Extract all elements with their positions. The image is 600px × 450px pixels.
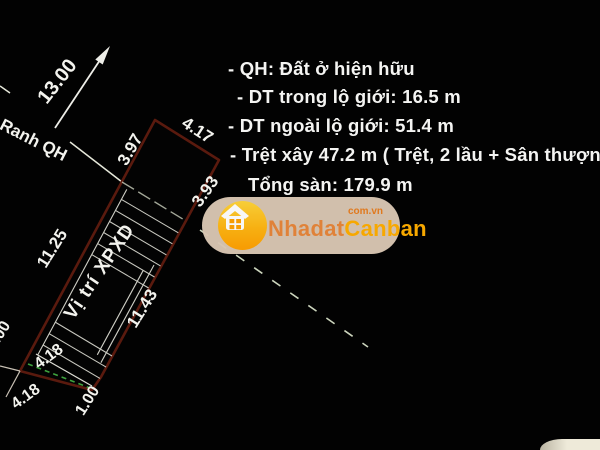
note-dt-trong: - DT trong lộ giới: 16.5 m xyxy=(237,86,461,108)
boundary-label: Ranh QH xyxy=(0,115,70,165)
land-plot-diagram: 13.00 Ranh QH 3.97 4.17 3.93 11.25 11.43… xyxy=(0,0,600,450)
cutoff-watermark-corner xyxy=(540,439,600,450)
dim-bottom-jog-left-label: 1.00 xyxy=(0,318,14,354)
dim-bottom-jog-right-label: 1.00 xyxy=(72,383,103,419)
logo-circle xyxy=(218,201,267,250)
note-tret-xay: - Trệt xây 47.2 m ( Trệt, 2 lầu + Sân th… xyxy=(230,144,600,166)
planning-notes: - QH: Đất ở hiện hữu - DT trong lộ giới:… xyxy=(228,53,600,203)
house-icon xyxy=(218,201,252,233)
watermark-logo: NhadatCanban com.vn xyxy=(202,197,400,254)
note-dt-ngoai: - DT ngoài lộ giới: 51.4 m xyxy=(228,115,454,137)
note-qh: - QH: Đất ở hiện hữu xyxy=(228,58,415,80)
brand-part-canban: Canban xyxy=(344,216,426,241)
brand-domain-suffix: com.vn xyxy=(348,206,383,217)
note-tong-san: Tổng sàn: 179.9 m xyxy=(248,174,413,196)
brand-part-nhadat: Nhadat xyxy=(268,216,344,241)
brand-wordmark: NhadatCanban xyxy=(268,216,427,242)
dim-bottom-outer-label: 4.18 xyxy=(8,381,43,413)
dim-left-long-edge-label: 11.25 xyxy=(33,226,71,271)
